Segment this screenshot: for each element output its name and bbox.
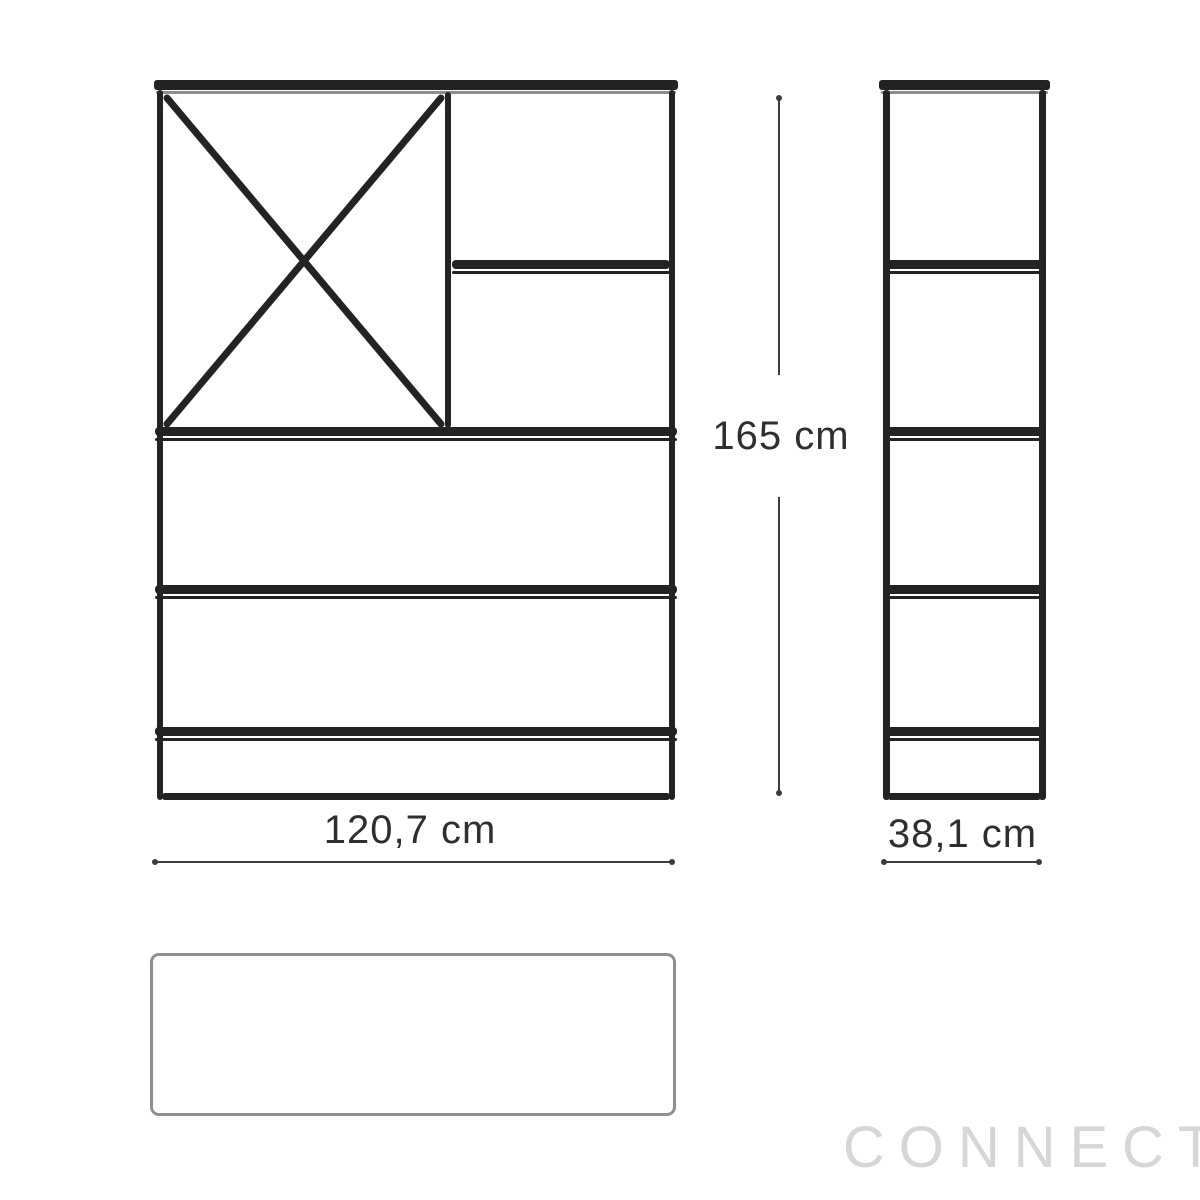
height-dimension-label: 165 cm xyxy=(681,416,881,456)
top-view xyxy=(150,953,676,1116)
side-left-post xyxy=(883,90,890,800)
shelf-bar xyxy=(884,727,1045,736)
dimension-line-segment xyxy=(778,98,780,375)
shelf-bar xyxy=(884,585,1045,594)
shelf-bar xyxy=(155,585,677,594)
side-view xyxy=(883,80,1046,803)
side-shelf xyxy=(884,260,1045,274)
dimension-endpoint-dot xyxy=(776,790,782,796)
furniture-dimension-diagram: 165 cm 120,7 cm xyxy=(0,0,1200,1200)
front-view xyxy=(157,80,675,803)
shelf-edge xyxy=(155,596,677,599)
side-shelf xyxy=(884,585,1045,599)
width-dimension-label: 120,7 cm xyxy=(160,810,660,850)
shelf-edge xyxy=(884,271,1045,274)
shelf-edge xyxy=(884,438,1045,441)
shelf-full xyxy=(155,427,677,441)
dimension-line-segment xyxy=(156,861,672,863)
shelf-bar xyxy=(884,427,1045,436)
front-top-panel xyxy=(154,80,678,90)
shelf-full xyxy=(155,727,677,741)
front-base xyxy=(162,793,670,800)
side-top-panel xyxy=(879,80,1050,90)
shelf-edge xyxy=(884,596,1045,599)
shelf-bar xyxy=(452,260,670,269)
shelf-edge xyxy=(884,738,1045,741)
dimension-line-segment xyxy=(778,497,780,793)
side-top-shadow xyxy=(881,91,1048,94)
side-shelf xyxy=(884,427,1045,441)
depth-dimension-label: 38,1 cm xyxy=(860,814,1065,854)
side-right-post xyxy=(1039,90,1046,800)
cabinet-divider xyxy=(445,92,451,428)
dimension-endpoint-dot xyxy=(1036,859,1042,865)
shelf-edge xyxy=(155,738,677,741)
dimension-endpoint-dot xyxy=(669,859,675,865)
watermark: CONNECT xyxy=(843,1119,1200,1177)
shelf-edge xyxy=(155,438,677,441)
shelf-bar xyxy=(155,427,677,436)
shelf-upper-right xyxy=(452,260,670,274)
shelf-bar xyxy=(884,260,1045,269)
front-right-post xyxy=(669,90,675,800)
dimension-line-segment xyxy=(885,861,1039,863)
side-shelf xyxy=(884,727,1045,741)
shelf-full xyxy=(155,585,677,599)
side-base xyxy=(888,793,1041,800)
cross-brace xyxy=(163,94,445,428)
shelf-bar xyxy=(155,727,677,736)
shelf-edge xyxy=(452,271,670,274)
